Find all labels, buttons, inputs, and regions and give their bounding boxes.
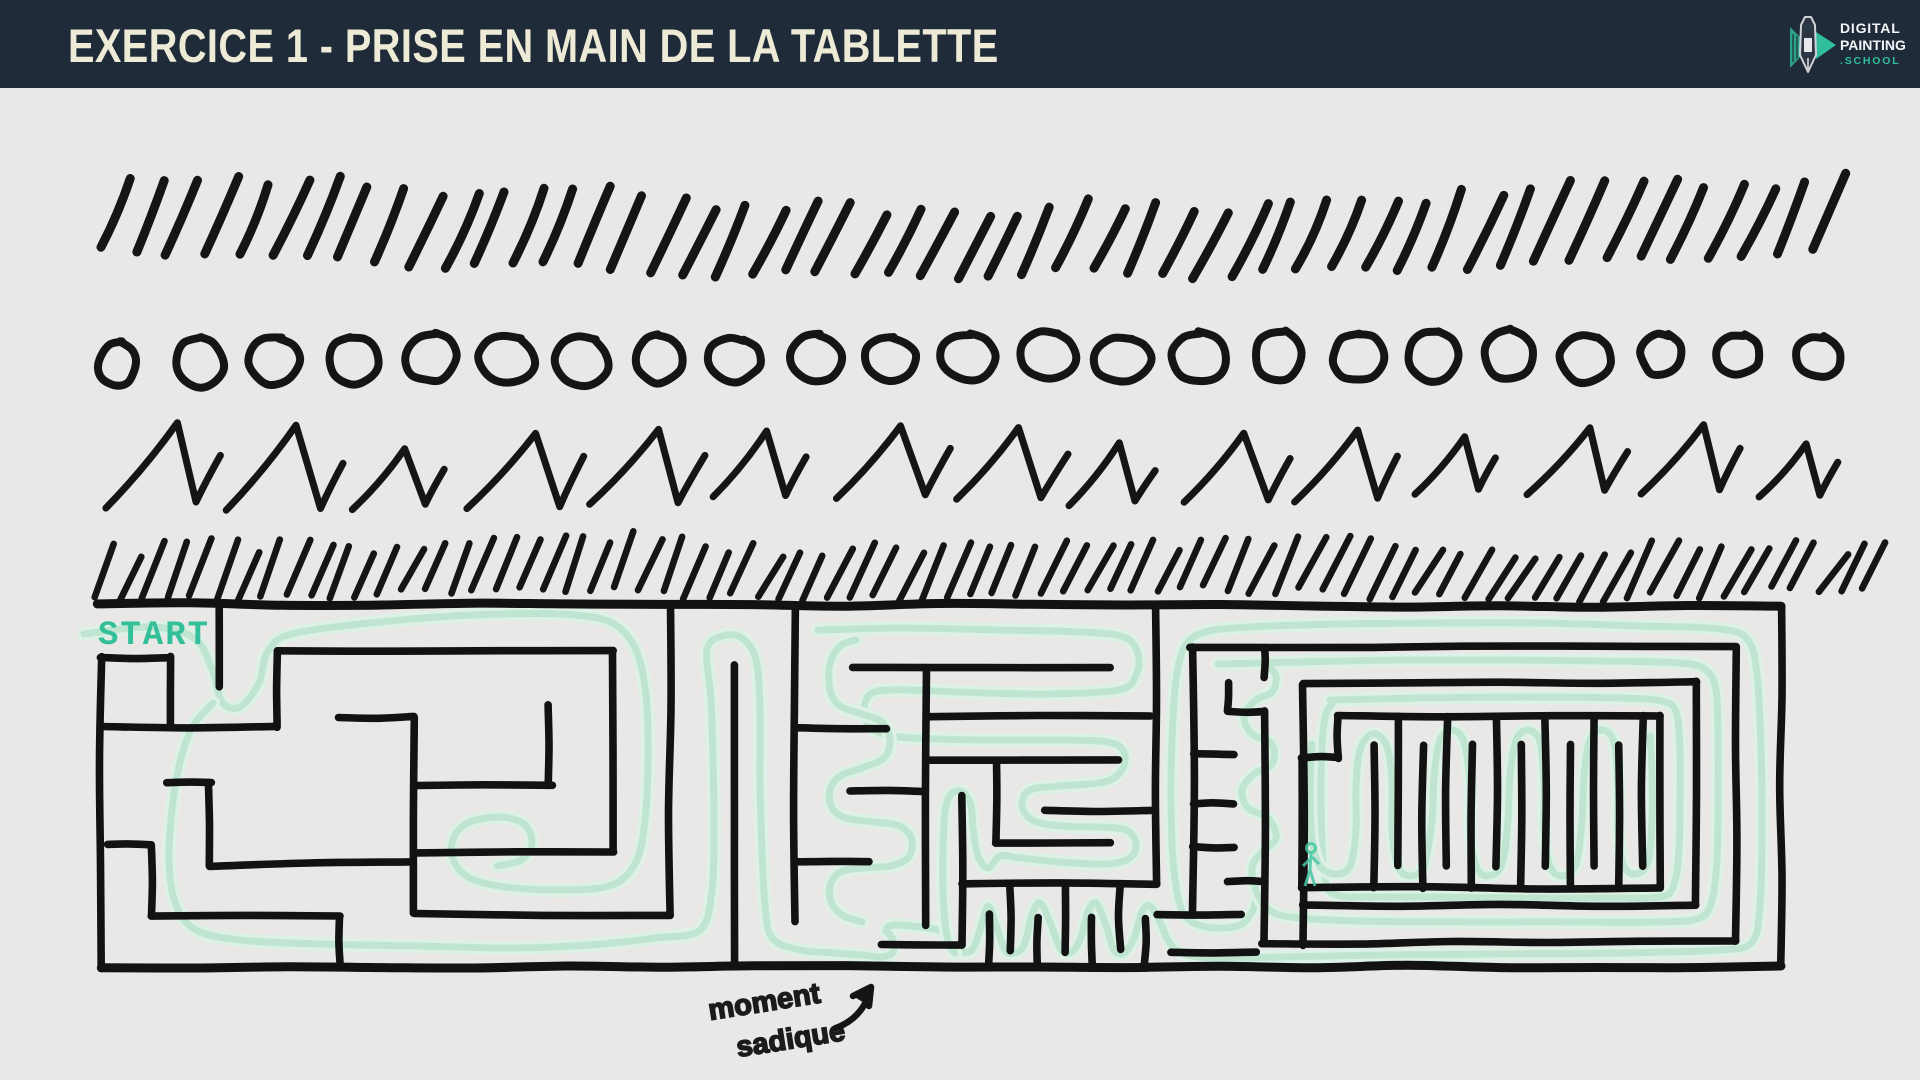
svg-text:.SCHOOL: .SCHOOL (1840, 55, 1900, 67)
svg-text:DIGITAL: DIGITAL (1840, 20, 1901, 36)
svg-text:START: START (98, 617, 210, 655)
svg-text:EXERCICE 1 - PRISE EN MAIN DE: EXERCICE 1 - PRISE EN MAIN DE LA TABLETT… (68, 21, 999, 73)
svg-text:PAINTING: PAINTING (1840, 37, 1906, 53)
